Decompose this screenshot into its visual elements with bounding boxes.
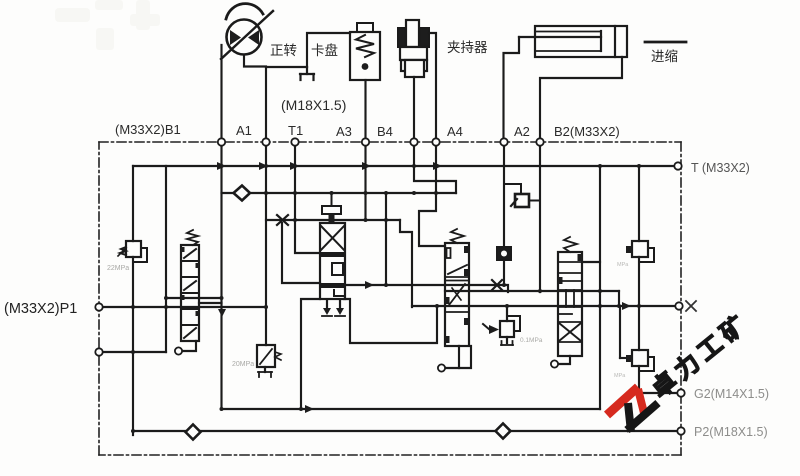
svg-text:(M33X2)B1: (M33X2)B1 — [115, 122, 181, 137]
svg-text:(M33X2)P1: (M33X2)P1 — [4, 301, 77, 317]
svg-text:20MPa: 20MPa — [232, 361, 254, 368]
svg-text:夹持器: 夹持器 — [447, 40, 488, 55]
svg-text:A2: A2 — [514, 124, 530, 139]
svg-text:进缩: 进缩 — [651, 49, 678, 64]
svg-text:22MPa: 22MPa — [107, 265, 129, 272]
svg-text:P2(M18X1.5): P2(M18X1.5) — [694, 425, 768, 439]
svg-text:0.1MPa: 0.1MPa — [520, 337, 543, 344]
svg-text:A1: A1 — [236, 123, 252, 138]
svg-text:卡盘: 卡盘 — [311, 42, 338, 58]
svg-text:MPa: MPa — [614, 373, 626, 379]
svg-text:T (M33X2): T (M33X2) — [691, 161, 750, 175]
svg-text:A4: A4 — [447, 124, 463, 139]
svg-text:B2(M33X2): B2(M33X2) — [554, 124, 620, 139]
svg-text:T1: T1 — [288, 123, 303, 138]
svg-text:G2(M14X1.5): G2(M14X1.5) — [694, 387, 769, 401]
svg-text:A3: A3 — [336, 124, 352, 139]
svg-text:MPa: MPa — [617, 262, 629, 268]
svg-text:B4: B4 — [377, 124, 393, 139]
svg-text:(M18X1.5): (M18X1.5) — [281, 97, 346, 113]
svg-text:正转: 正转 — [270, 43, 297, 58]
